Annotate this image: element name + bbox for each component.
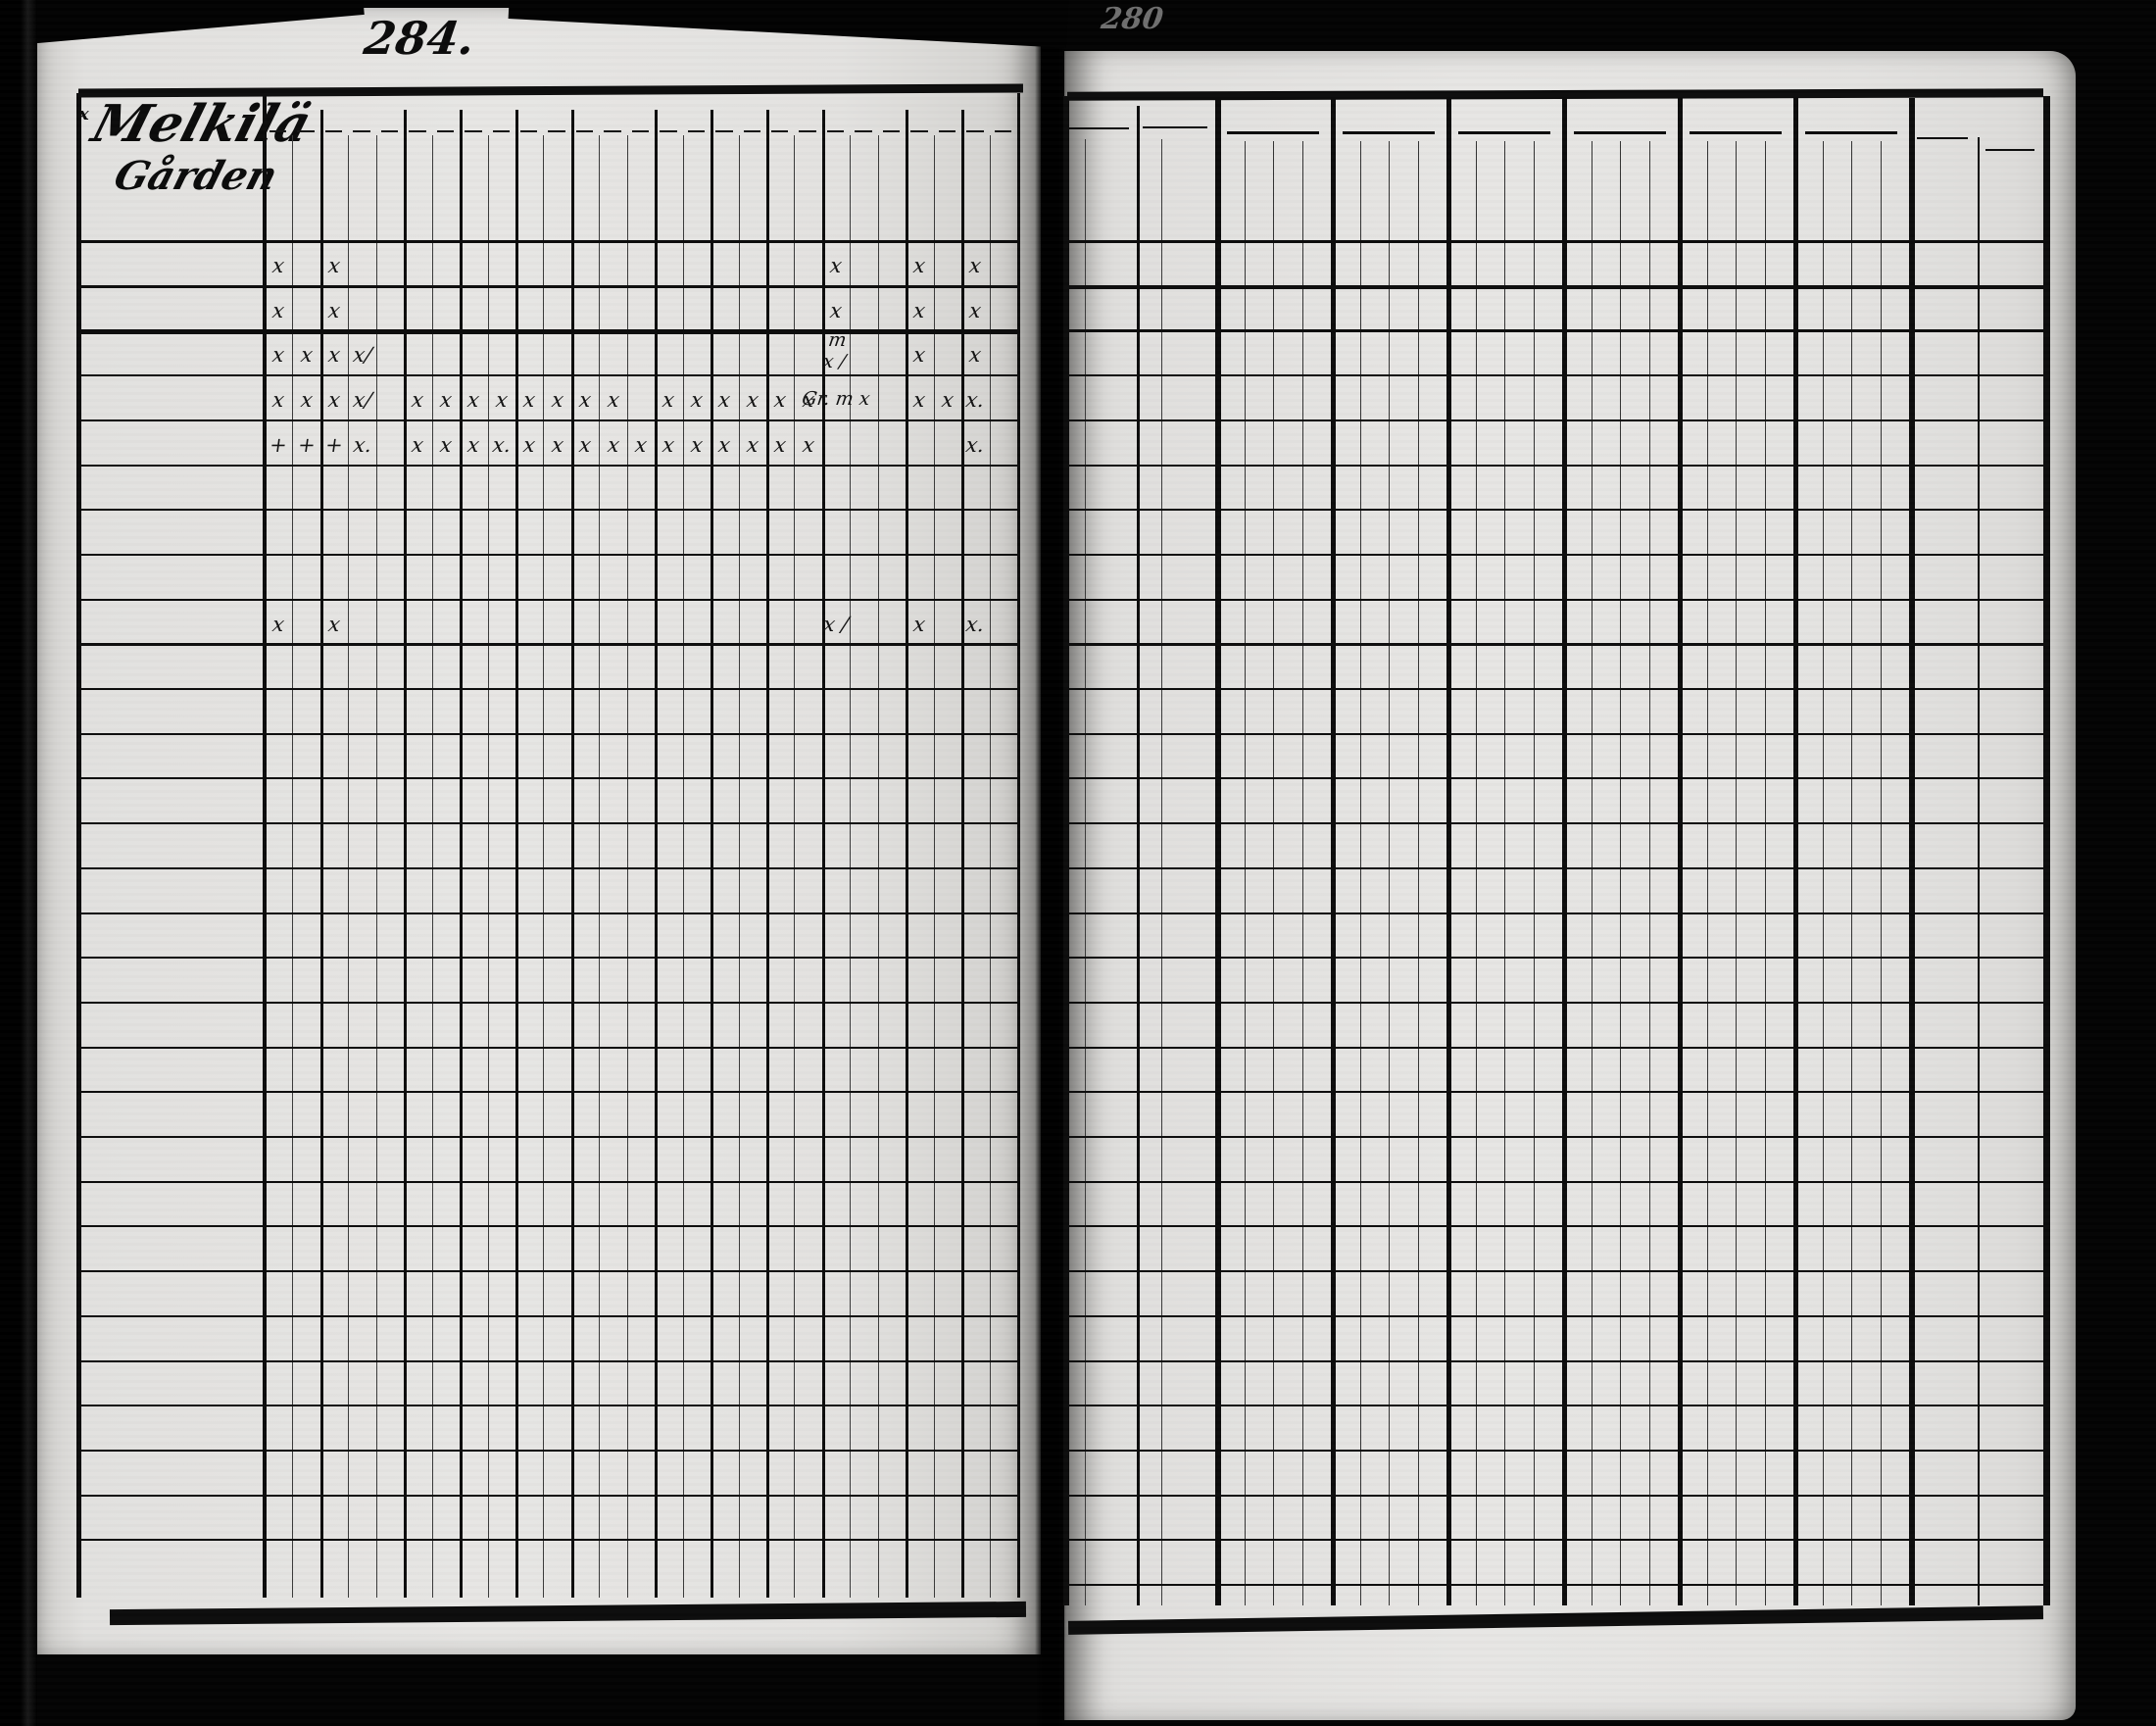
natus-d-line bbox=[1085, 139, 1086, 1605]
subcolumn-label bbox=[937, 137, 960, 235]
right-row-line bbox=[1063, 1181, 2043, 1183]
subcolumn-dash bbox=[715, 130, 732, 132]
left-row-line bbox=[76, 912, 1017, 914]
subcolumn-dash bbox=[744, 130, 760, 132]
tally-mark: x bbox=[438, 433, 453, 457]
natus-underline bbox=[1069, 127, 1129, 129]
right-row-line bbox=[1063, 1539, 2043, 1541]
left-row-line bbox=[76, 1539, 1017, 1541]
tally-mark: x. bbox=[491, 433, 513, 457]
subcolumn-label bbox=[491, 137, 514, 235]
year-underline bbox=[1805, 131, 1897, 134]
right-row-line bbox=[1063, 240, 2043, 243]
subcolumn-label bbox=[463, 137, 486, 235]
obiit-years-line bbox=[1215, 98, 1221, 1605]
tally-mark: m x / bbox=[821, 329, 850, 372]
subcolumn-label bbox=[268, 137, 291, 235]
left-row-line bbox=[76, 465, 1017, 467]
right-row-line bbox=[1063, 554, 2043, 556]
tally-mark: x bbox=[438, 388, 453, 412]
right-row-line bbox=[1063, 867, 2043, 869]
tally-mark: x bbox=[327, 254, 342, 277]
subcolumn-dash bbox=[688, 130, 705, 132]
right-row-line bbox=[1063, 1450, 2043, 1452]
year-underline bbox=[1574, 131, 1666, 134]
tally-mark: x/ bbox=[351, 388, 372, 412]
year-underline bbox=[1227, 131, 1319, 134]
subcolumn-dash bbox=[632, 130, 649, 132]
year-boundary-line bbox=[1446, 98, 1451, 1605]
left-table-outer-left bbox=[76, 93, 81, 1598]
tally-mark: x bbox=[466, 433, 481, 457]
tally-mark: x bbox=[745, 388, 759, 412]
tally-mark: x bbox=[550, 388, 564, 412]
tally-mark: x bbox=[271, 388, 286, 412]
right-row-line bbox=[1063, 643, 2043, 646]
subcolumn-label bbox=[518, 137, 542, 235]
left-name-divider bbox=[263, 93, 267, 1598]
year-subcolumn-line bbox=[1534, 141, 1535, 1605]
left-row-line bbox=[76, 374, 1017, 376]
year-subcolumn-line bbox=[1707, 141, 1708, 1605]
right-row-line bbox=[1063, 1047, 2043, 1049]
left-row-line bbox=[76, 1315, 1017, 1317]
year-subcolumn-line bbox=[1851, 141, 1852, 1605]
left-row-line bbox=[76, 1495, 1017, 1497]
subcolumn-label bbox=[686, 137, 710, 235]
year-subcolumn-line bbox=[1823, 141, 1824, 1605]
tally-mark: x bbox=[829, 299, 844, 322]
tally-mark: x bbox=[522, 388, 537, 412]
left-row-line bbox=[76, 1270, 1017, 1272]
tally-mark: x bbox=[912, 343, 927, 367]
tally-mark: + bbox=[269, 433, 289, 457]
year-boundary-line bbox=[1793, 98, 1798, 1605]
right-row-line bbox=[1063, 1270, 2043, 1272]
left-row-line bbox=[76, 554, 1017, 556]
tally-mark: x / bbox=[822, 613, 851, 636]
year-subcolumn-line bbox=[1881, 141, 1882, 1605]
tally-mark: x bbox=[327, 388, 342, 412]
left-row-line bbox=[76, 643, 1017, 646]
subcolumn-dash bbox=[771, 130, 788, 132]
left-row-line bbox=[76, 1181, 1017, 1183]
subcolumn-label bbox=[964, 137, 988, 235]
tally-mark: x bbox=[327, 299, 342, 322]
right-row-line bbox=[1063, 957, 2043, 959]
subcolumn-label bbox=[797, 137, 820, 235]
subcolumn-label bbox=[853, 137, 876, 235]
subcolumn-label bbox=[742, 137, 765, 235]
tally-mark: x bbox=[829, 254, 844, 277]
tally-mark: x bbox=[773, 388, 788, 412]
tally-mark: x bbox=[968, 299, 983, 322]
right-page-number-faint: 280 bbox=[1100, 2, 1166, 36]
left-row-line bbox=[76, 733, 1017, 735]
left-table-bottom-bar bbox=[110, 1602, 1026, 1625]
tally-mark: x bbox=[912, 613, 927, 636]
left-row-line bbox=[76, 509, 1017, 511]
subcolumn-label bbox=[993, 137, 1016, 235]
left-row-line bbox=[76, 688, 1017, 690]
left-table-top-border bbox=[78, 83, 1023, 97]
tally-mark: x bbox=[550, 433, 564, 457]
right-table-outer-right bbox=[2043, 96, 2050, 1605]
subcolumn-dash bbox=[520, 130, 537, 132]
right-row-line bbox=[1063, 419, 2043, 421]
tally-mark: x bbox=[411, 433, 425, 457]
tally-mark: x bbox=[689, 388, 704, 412]
year-subcolumn-line bbox=[1302, 141, 1303, 1605]
left-row-line bbox=[76, 1450, 1017, 1452]
subcolumn-label bbox=[574, 137, 598, 235]
farm-name-line2: Gården bbox=[109, 153, 282, 199]
subcolumn-dash bbox=[325, 130, 342, 132]
left-table-outer-right bbox=[1017, 93, 1020, 1598]
tally-mark: x. bbox=[964, 388, 986, 412]
subcolumn-label bbox=[713, 137, 737, 235]
right-table-outer-left bbox=[1063, 96, 1069, 1605]
year-subcolumn-line bbox=[1765, 141, 1766, 1605]
year-underline bbox=[1343, 131, 1435, 134]
year-subcolumn-line bbox=[1504, 141, 1505, 1605]
subcolumn-label bbox=[658, 137, 681, 235]
year-underline bbox=[1690, 131, 1782, 134]
right-row-line bbox=[1063, 912, 2043, 914]
subcolumn-dash bbox=[409, 130, 425, 132]
right-row-line bbox=[1063, 1091, 2043, 1093]
right-row-line bbox=[1063, 822, 2043, 824]
left-row-line bbox=[76, 867, 1017, 869]
tally-mark: x bbox=[299, 388, 314, 412]
abit-dash bbox=[1985, 149, 2034, 151]
year-boundary-line bbox=[1562, 98, 1567, 1605]
tally-mark: x bbox=[271, 613, 286, 636]
subcolumn-label bbox=[379, 137, 403, 235]
right-row-line bbox=[1063, 1584, 2043, 1586]
tally-mark: x bbox=[912, 299, 927, 322]
year-subcolumn-line bbox=[1592, 141, 1592, 1605]
year-subcolumn-line bbox=[1245, 141, 1246, 1605]
obiit-d-line bbox=[1161, 139, 1162, 1605]
tally-mark: x bbox=[661, 433, 676, 457]
right-table-bottom-bar bbox=[1068, 1605, 2043, 1635]
subcolumn-dash bbox=[548, 130, 564, 132]
subcolumn-dash bbox=[966, 130, 983, 132]
subcolumn-label bbox=[769, 137, 793, 235]
subcolumn-label bbox=[630, 137, 654, 235]
subcolumn-dash bbox=[604, 130, 620, 132]
left-row-line bbox=[76, 1091, 1017, 1093]
right-row-line bbox=[1063, 1225, 2043, 1227]
subcolumn-dash bbox=[297, 130, 314, 132]
subcolumn-label bbox=[323, 137, 347, 235]
tally-mark: x. bbox=[964, 613, 986, 636]
year-boundary-line bbox=[1331, 98, 1336, 1605]
subcolumn-label bbox=[295, 137, 318, 235]
right-row-line bbox=[1063, 1405, 2043, 1406]
right-row-line bbox=[1063, 509, 2043, 511]
right-row-line bbox=[1063, 1315, 2043, 1317]
acces-dash bbox=[1917, 137, 1968, 139]
subcolumn-dash bbox=[576, 130, 593, 132]
subcolumn-dash bbox=[353, 130, 369, 132]
right-row-line bbox=[1063, 329, 2043, 332]
tally-mark: x bbox=[745, 433, 759, 457]
right-row-line bbox=[1063, 1360, 2043, 1362]
year-subcolumn-line bbox=[1389, 141, 1390, 1605]
tally-mark: x bbox=[661, 388, 676, 412]
scanned-book-spread: 284. Melkilä Gården x xxxxxxxxxxxxxx/m x… bbox=[0, 0, 2156, 1726]
year-boundary-line bbox=[1678, 98, 1683, 1605]
subcolumn-dash bbox=[381, 130, 398, 132]
tally-mark: x bbox=[633, 433, 648, 457]
subcolumn-dash bbox=[995, 130, 1011, 132]
subcolumn-dash bbox=[939, 130, 955, 132]
tally-mark: x. bbox=[964, 433, 986, 457]
subcolumn-dash bbox=[493, 130, 510, 132]
tally-mark: x bbox=[411, 388, 425, 412]
tally-mark: x. bbox=[352, 433, 373, 457]
tally-mark: x bbox=[717, 433, 732, 457]
tally-mark: x bbox=[271, 299, 286, 322]
year-subcolumn-line bbox=[1476, 141, 1477, 1605]
obiit-underline bbox=[1143, 126, 1207, 128]
table-overlay: 284. Melkilä Gården x xxxxxxxxxxxxxx/m x… bbox=[0, 0, 2156, 1726]
subcolumn-label bbox=[435, 137, 459, 235]
tally-mark: x bbox=[271, 343, 286, 367]
years-acces-line bbox=[1909, 98, 1915, 1605]
right-row-line bbox=[1063, 599, 2043, 601]
left-row-line bbox=[76, 1360, 1017, 1362]
right-row-line bbox=[1063, 285, 2043, 289]
year-subcolumn-line bbox=[1360, 141, 1361, 1605]
right-row-line bbox=[1063, 374, 2043, 376]
subcolumn-dash bbox=[269, 130, 286, 132]
subcolumn-dash bbox=[437, 130, 454, 132]
subcolumn-label bbox=[908, 137, 932, 235]
tally-mark: x bbox=[606, 433, 620, 457]
tally-mark: x bbox=[271, 254, 286, 277]
right-table-top-border bbox=[1067, 88, 2043, 100]
tally-mark: x bbox=[968, 343, 983, 367]
left-row-line bbox=[76, 419, 1017, 421]
left-row-line bbox=[76, 1225, 1017, 1227]
subcolumn-dash bbox=[883, 130, 900, 132]
left-row-line bbox=[76, 1047, 1017, 1049]
subcolumn-label bbox=[881, 137, 905, 235]
right-row-line bbox=[1063, 777, 2043, 779]
left-row-line bbox=[76, 1136, 1017, 1138]
left-row-line bbox=[76, 240, 1017, 243]
tally-mark: x bbox=[299, 343, 314, 367]
tally-mark: x bbox=[327, 613, 342, 636]
year-subcolumn-line bbox=[1620, 141, 1621, 1605]
tally-mark: x bbox=[940, 388, 955, 412]
subcolumn-label bbox=[407, 137, 430, 235]
year-subcolumn-line bbox=[1418, 141, 1419, 1605]
tally-mark: x bbox=[912, 254, 927, 277]
tally-mark: x bbox=[578, 388, 593, 412]
subcolumn-label bbox=[351, 137, 374, 235]
tally-mark: x bbox=[327, 343, 342, 367]
right-row-line bbox=[1063, 1136, 2043, 1138]
book-edge-left-binding bbox=[0, 0, 37, 1726]
left-row-line bbox=[76, 599, 1017, 601]
year-subcolumn-line bbox=[1736, 141, 1737, 1605]
subcolumn-dash bbox=[855, 130, 871, 132]
tally-mark: + bbox=[296, 433, 317, 457]
tally-mark: x bbox=[773, 433, 788, 457]
left-row-line bbox=[76, 822, 1017, 824]
tally-mark: x bbox=[606, 388, 620, 412]
tally-mark: x bbox=[717, 388, 732, 412]
year-underline bbox=[1458, 131, 1550, 134]
tally-mark: x bbox=[578, 433, 593, 457]
tally-mark: x bbox=[801, 433, 815, 457]
year-subcolumn-line bbox=[1649, 141, 1650, 1605]
subcolumn-dash bbox=[465, 130, 481, 132]
tally-mark: x bbox=[912, 388, 927, 412]
subcolumn-dash bbox=[910, 130, 927, 132]
tally-mark: x bbox=[689, 433, 704, 457]
left-row-line bbox=[76, 329, 1017, 334]
left-row-line bbox=[76, 777, 1017, 779]
subcolumn-dash bbox=[799, 130, 815, 132]
right-row-line bbox=[1063, 1495, 2043, 1497]
tally-mark: x bbox=[968, 254, 983, 277]
acces-abit-line bbox=[1978, 137, 1980, 1605]
year-subcolumn-line bbox=[1273, 141, 1274, 1605]
left-row-line bbox=[76, 1002, 1017, 1004]
right-row-line bbox=[1063, 1002, 2043, 1004]
subcolumn-dash bbox=[827, 130, 844, 132]
subcolumn-label bbox=[602, 137, 625, 235]
left-row-line bbox=[76, 285, 1017, 288]
left-page-number: 284. bbox=[361, 12, 478, 65]
tally-mark: x bbox=[522, 433, 537, 457]
left-row-line bbox=[76, 957, 1017, 959]
right-row-line bbox=[1063, 465, 2043, 467]
tally-mark: x bbox=[494, 388, 509, 412]
tally-mark: x bbox=[466, 388, 481, 412]
tally-mark: Gr. m x bbox=[801, 388, 871, 410]
tally-mark: x/ bbox=[351, 343, 372, 367]
right-row-line bbox=[1063, 733, 2043, 735]
subcolumn-label bbox=[825, 137, 849, 235]
subcolumn-dash bbox=[660, 130, 676, 132]
subcolumn-label bbox=[546, 137, 569, 235]
left-row-line bbox=[76, 1405, 1017, 1406]
right-row-line bbox=[1063, 688, 2043, 690]
tally-mark: + bbox=[324, 433, 345, 457]
